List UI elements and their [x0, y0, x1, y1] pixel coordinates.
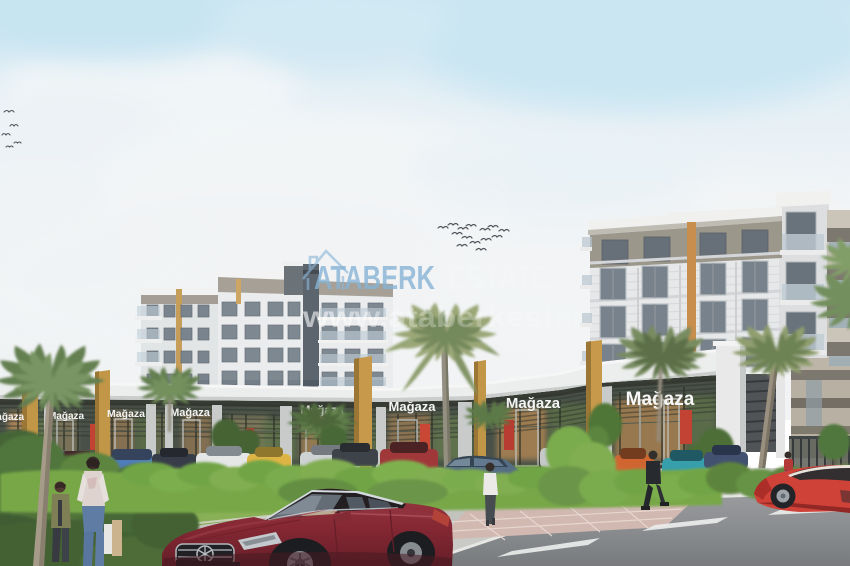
svg-text:ATABERK: ATABERK: [314, 259, 435, 296]
svg-text:ESTATE: ESTATE: [447, 259, 551, 296]
svg-text:www.ataberkestat: www.ataberkestat: [302, 301, 583, 334]
